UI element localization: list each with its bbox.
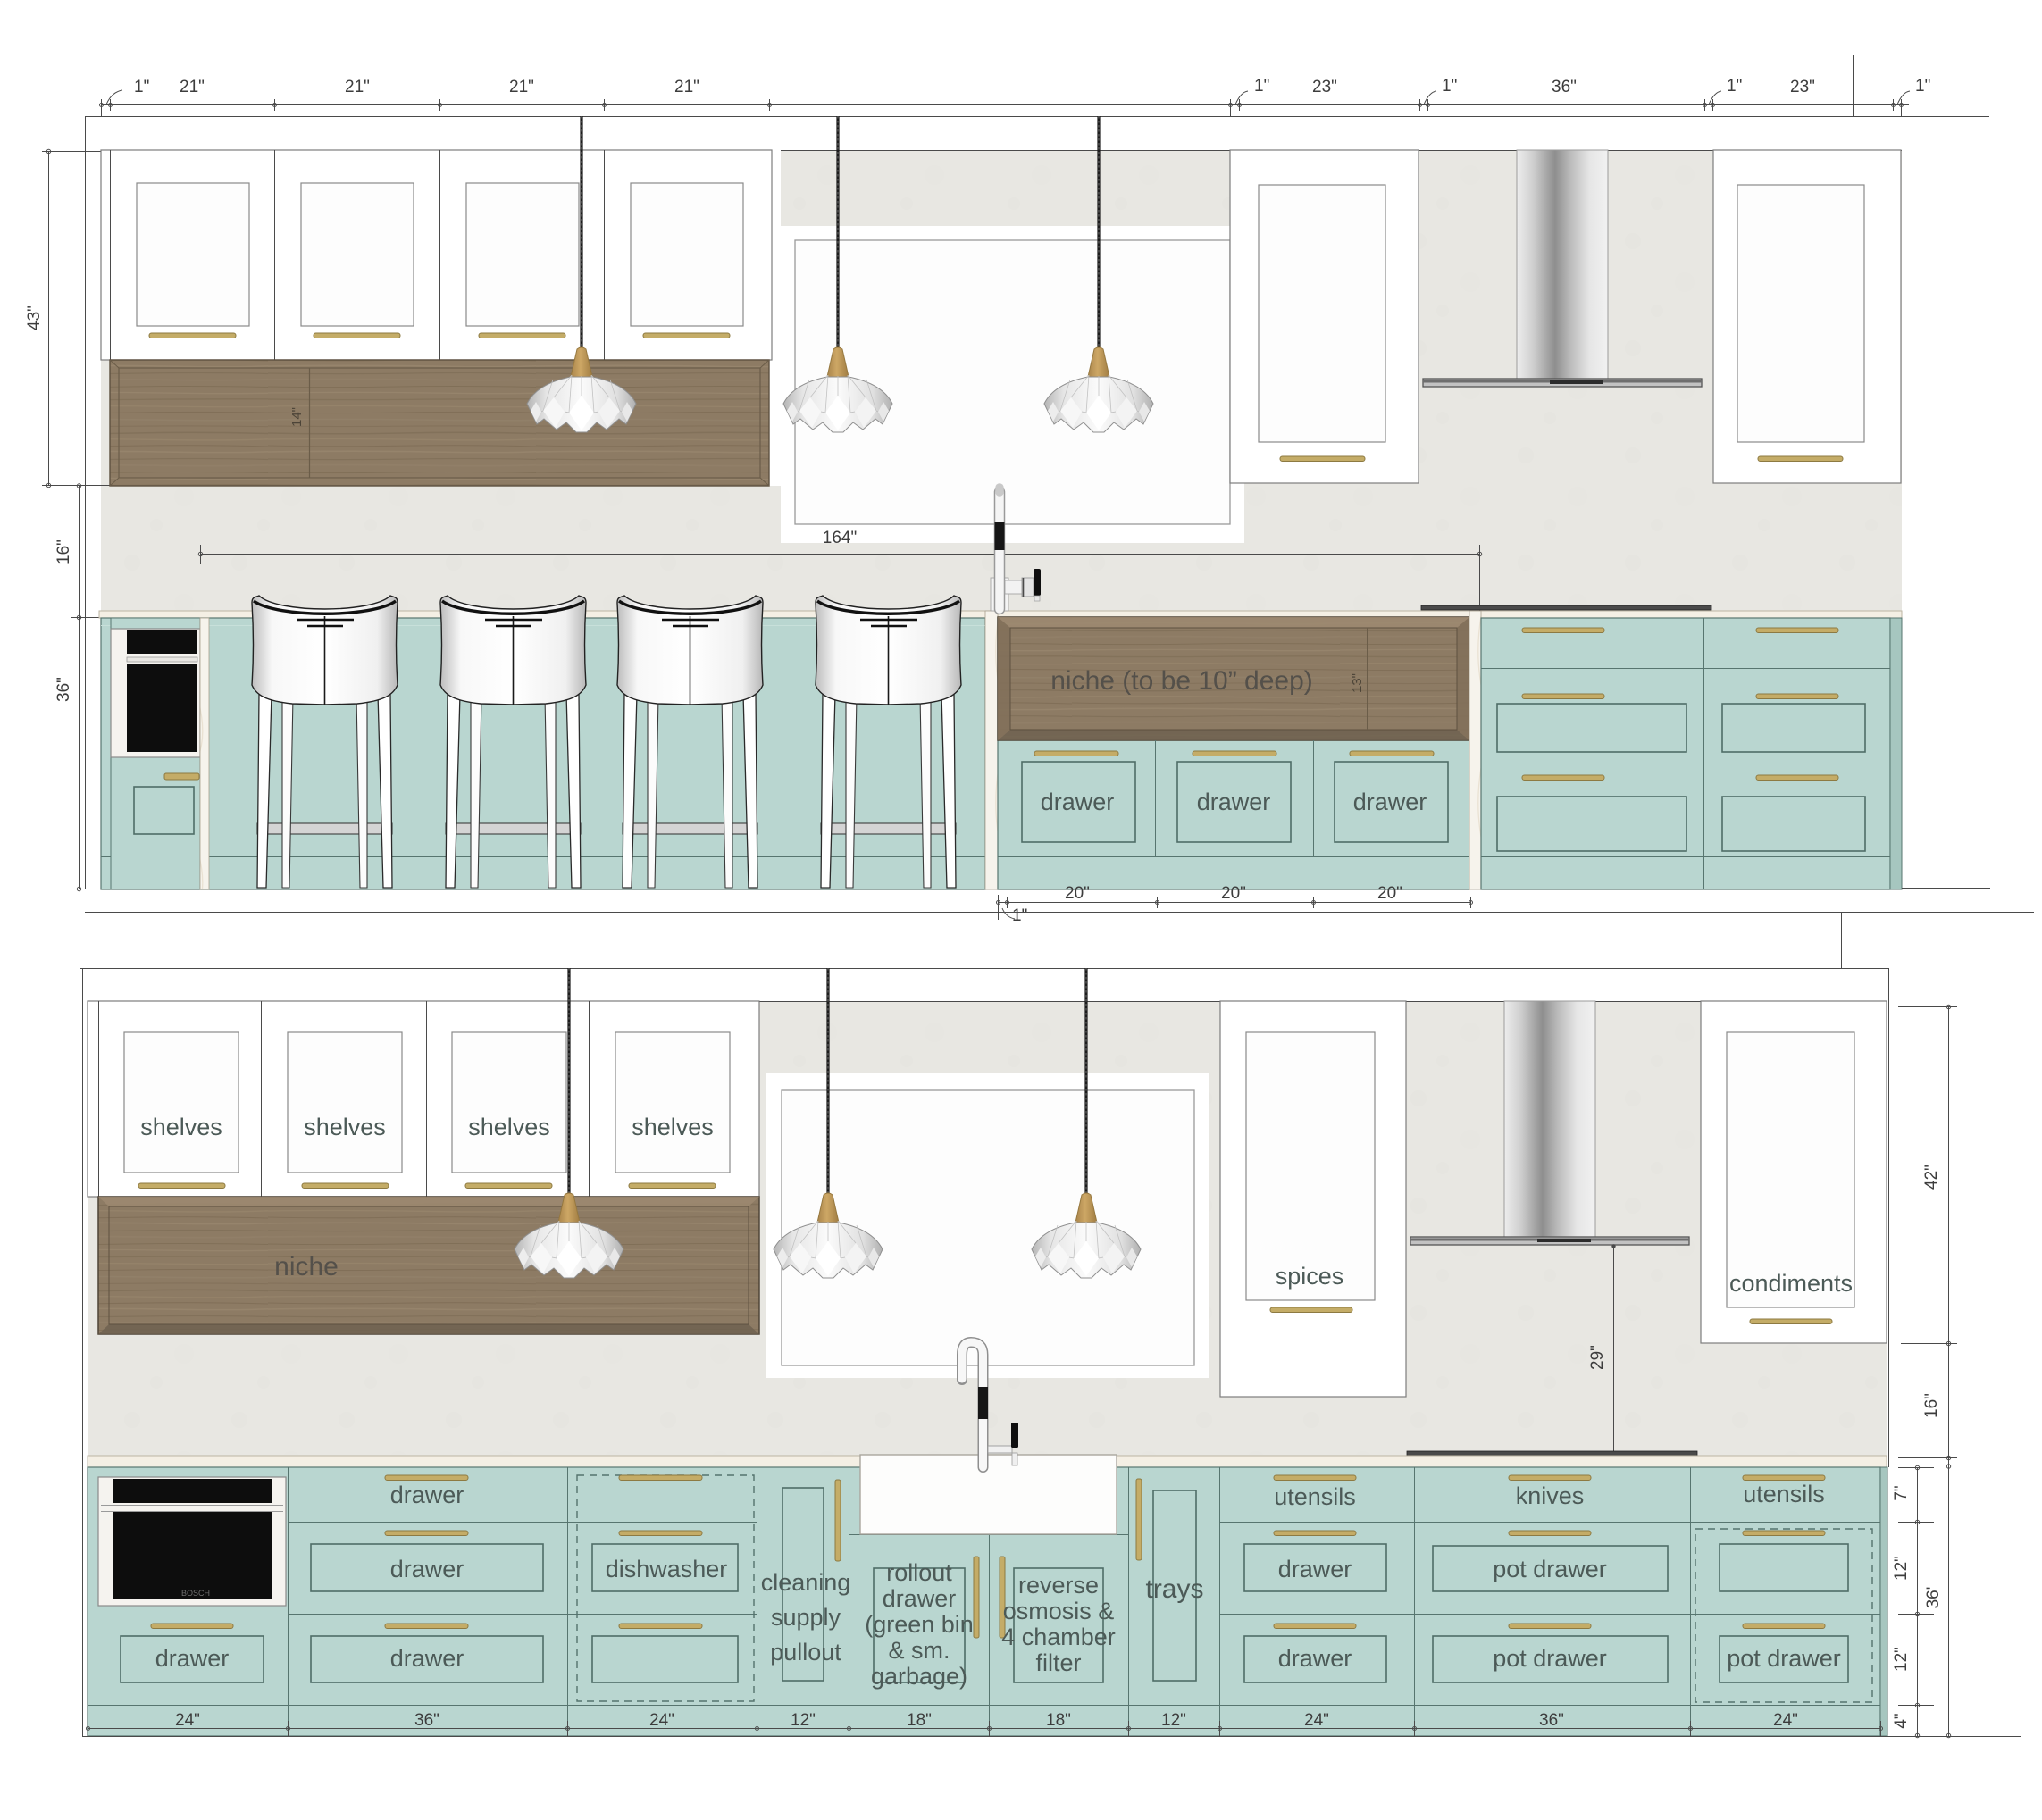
svg-text:24": 24" bbox=[649, 1711, 674, 1730]
svg-text:shelves: shelves bbox=[304, 1114, 386, 1140]
svg-text:pullout: pullout bbox=[770, 1639, 841, 1666]
svg-text:12": 12" bbox=[1892, 1556, 1911, 1581]
svg-text:drawer: drawer bbox=[1041, 789, 1115, 815]
svg-text:20": 20" bbox=[1221, 884, 1246, 903]
svg-text:12": 12" bbox=[1892, 1647, 1911, 1672]
svg-text:reverse: reverse bbox=[1018, 1572, 1099, 1599]
svg-text:drawer: drawer bbox=[883, 1585, 957, 1612]
svg-text:pot drawer: pot drawer bbox=[1727, 1645, 1841, 1672]
svg-text:drawer: drawer bbox=[390, 1556, 464, 1582]
svg-text:29": 29" bbox=[1588, 1345, 1607, 1370]
svg-text:7": 7" bbox=[1892, 1485, 1911, 1500]
svg-text:164": 164" bbox=[823, 529, 857, 547]
svg-text:pot drawer: pot drawer bbox=[1493, 1645, 1607, 1672]
svg-text:14": 14" bbox=[289, 407, 305, 427]
svg-text:drawer: drawer bbox=[1278, 1556, 1352, 1582]
svg-text:1": 1" bbox=[1915, 77, 1930, 96]
svg-text:supply: supply bbox=[771, 1604, 841, 1631]
svg-text:drawer: drawer bbox=[1353, 789, 1427, 815]
svg-text:BOSCH: BOSCH bbox=[181, 1589, 210, 1598]
svg-text:23": 23" bbox=[1790, 78, 1815, 96]
svg-text:4 chamber: 4 chamber bbox=[1001, 1624, 1116, 1650]
svg-text:drawer: drawer bbox=[390, 1482, 464, 1508]
svg-text:trays: trays bbox=[1145, 1574, 1203, 1604]
svg-text:20": 20" bbox=[1065, 884, 1090, 903]
svg-text:shelves: shelves bbox=[468, 1114, 550, 1140]
svg-text:16": 16" bbox=[1922, 1393, 1941, 1418]
svg-text:21": 21" bbox=[509, 78, 534, 96]
svg-text:18": 18" bbox=[907, 1711, 932, 1730]
svg-text:1": 1" bbox=[1012, 906, 1027, 925]
svg-text:12": 12" bbox=[1161, 1711, 1186, 1730]
svg-text:dishwasher: dishwasher bbox=[606, 1556, 728, 1582]
svg-text:36': 36' bbox=[1924, 1587, 1943, 1609]
svg-text:drawer: drawer bbox=[1197, 789, 1271, 815]
svg-text:rollout: rollout bbox=[886, 1559, 952, 1586]
svg-text:shelves: shelves bbox=[140, 1114, 222, 1140]
svg-text:niche: niche bbox=[274, 1252, 339, 1282]
svg-text:& sm.: & sm. bbox=[888, 1637, 950, 1664]
svg-text:drawer: drawer bbox=[390, 1645, 464, 1672]
svg-text:drawer: drawer bbox=[1278, 1645, 1352, 1672]
svg-text:utensils: utensils bbox=[1743, 1481, 1825, 1507]
svg-text:osmosis &: osmosis & bbox=[1003, 1598, 1115, 1624]
svg-text:24": 24" bbox=[1304, 1711, 1329, 1730]
svg-text:1": 1" bbox=[134, 78, 149, 96]
svg-text:filter: filter bbox=[1035, 1649, 1081, 1676]
svg-text:13": 13" bbox=[1350, 673, 1365, 693]
svg-text:knives: knives bbox=[1516, 1482, 1585, 1509]
svg-text:42": 42" bbox=[1922, 1165, 1941, 1190]
svg-text:43": 43" bbox=[25, 305, 44, 330]
svg-text:shelves: shelves bbox=[632, 1114, 714, 1140]
svg-text:36": 36" bbox=[414, 1711, 439, 1730]
svg-text:utensils: utensils bbox=[1274, 1483, 1356, 1510]
svg-text:18": 18" bbox=[1046, 1711, 1071, 1730]
svg-text:23": 23" bbox=[1312, 78, 1337, 96]
svg-text:21": 21" bbox=[674, 78, 699, 96]
svg-text:condiments: condiments bbox=[1729, 1270, 1853, 1297]
svg-text:36": 36" bbox=[1552, 78, 1577, 96]
svg-text:cleaning: cleaning bbox=[761, 1569, 851, 1596]
svg-text:4": 4" bbox=[1892, 1713, 1911, 1728]
svg-text:1": 1" bbox=[1442, 77, 1457, 96]
svg-text:16": 16" bbox=[54, 539, 73, 564]
svg-text:24": 24" bbox=[1773, 1711, 1798, 1730]
svg-text:20": 20" bbox=[1377, 884, 1402, 903]
svg-text:21": 21" bbox=[345, 78, 370, 96]
svg-text:21": 21" bbox=[180, 78, 205, 96]
svg-text:garbage): garbage) bbox=[871, 1663, 967, 1690]
svg-text:24": 24" bbox=[175, 1711, 200, 1730]
svg-text:pot drawer: pot drawer bbox=[1493, 1556, 1607, 1582]
svg-text:spices: spices bbox=[1276, 1263, 1344, 1290]
svg-text:niche (to be 10” deep): niche (to be 10” deep) bbox=[1050, 666, 1313, 696]
svg-text:1": 1" bbox=[1254, 77, 1269, 96]
svg-text:36": 36" bbox=[1539, 1711, 1564, 1730]
svg-text:drawer: drawer bbox=[155, 1645, 230, 1672]
svg-text:(green bin: (green bin bbox=[865, 1611, 974, 1638]
svg-text:12": 12" bbox=[791, 1711, 816, 1730]
svg-text:36": 36" bbox=[54, 677, 73, 702]
svg-text:1": 1" bbox=[1727, 77, 1742, 96]
